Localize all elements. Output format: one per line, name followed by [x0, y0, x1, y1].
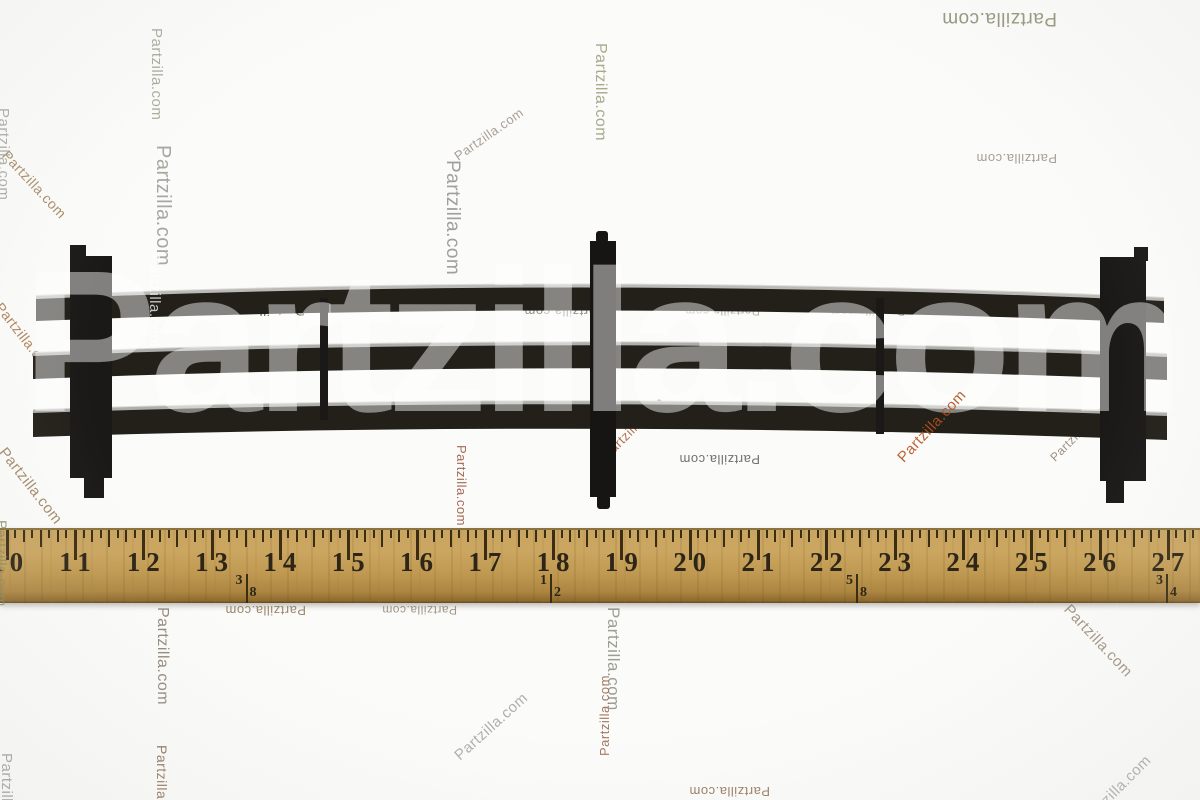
ruler-inch-number: 25 — [1009, 547, 1054, 578]
ruler-tick — [859, 530, 861, 547]
ruler-inch-number: 17 — [462, 547, 507, 578]
ruler-tick — [578, 530, 580, 538]
ruler-tick — [236, 530, 238, 538]
ruler-tick — [1064, 530, 1066, 547]
ruler-tick — [262, 530, 264, 542]
ruler-tick — [842, 530, 844, 542]
ruler-inch-number: 21 — [736, 547, 781, 578]
product-photo: Partzilla.comPartzilla.comPartzilla.comP… — [0, 0, 1200, 800]
ruler-tick — [219, 530, 221, 538]
ruler-tick — [603, 530, 605, 542]
ruler-tick — [928, 530, 930, 547]
ruler-tick — [313, 530, 315, 547]
ruler-tick — [526, 530, 528, 538]
ruler-tick — [364, 530, 366, 542]
ruler-tick — [125, 530, 127, 542]
ruler-tick — [57, 530, 59, 542]
ruler-tick — [851, 530, 853, 538]
ruler-tick — [970, 530, 972, 538]
ruler-tick — [629, 530, 631, 538]
ruler-tick — [672, 530, 674, 542]
ruler-tick — [791, 530, 793, 547]
ruler-tick — [569, 530, 571, 542]
ruler-inch-number: 16 — [394, 547, 439, 578]
ruler-tick — [91, 530, 93, 542]
ruler-tick — [766, 530, 768, 538]
ruler-tick — [245, 530, 247, 547]
ruler-tick — [100, 530, 102, 538]
ruler-tick — [663, 530, 665, 538]
ruler-tick — [287, 530, 289, 538]
ruler-tick — [1116, 530, 1118, 542]
ruler-tick — [1184, 530, 1186, 542]
ruler-inch-number: 13 — [189, 547, 234, 578]
ruler-tick — [740, 530, 742, 542]
ruler-tick — [305, 530, 307, 538]
ruler-tick — [706, 530, 708, 542]
ruler-tick — [424, 530, 426, 538]
ruler-tick — [979, 530, 981, 542]
ruler-tick — [748, 530, 750, 538]
ruler-tick — [253, 530, 255, 538]
ruler-tick — [185, 530, 187, 538]
ruler-inch-number: 12 — [121, 547, 166, 578]
ruler-tick — [83, 530, 85, 538]
ruler-tick — [518, 530, 520, 547]
ruler-tick — [1175, 530, 1177, 538]
ruler-tick — [1107, 530, 1109, 538]
ruler-tick — [919, 530, 921, 538]
ruler-tick — [1047, 530, 1049, 542]
ruler-tick — [373, 530, 375, 538]
ruler-tick — [595, 530, 597, 538]
ruler-inch-number: 19 — [599, 547, 644, 578]
ruler-tick — [885, 530, 887, 538]
ruler-tick — [1056, 530, 1058, 538]
ruler-tick — [1005, 530, 1007, 538]
grille-bracket-right — [1100, 247, 1148, 503]
ruler-tick — [817, 530, 819, 538]
ruler-tick — [31, 530, 33, 538]
ruler-tick — [381, 530, 383, 547]
ruler-tick — [1124, 530, 1126, 538]
ruler-tick — [655, 530, 657, 547]
ruler-tick — [612, 530, 614, 538]
ruler-tick — [1073, 530, 1075, 538]
ruler-tick — [40, 530, 42, 547]
ruler-tick — [467, 530, 469, 542]
ruler-tick — [433, 530, 435, 542]
ruler-tick — [450, 530, 452, 547]
ruler-tick — [902, 530, 904, 538]
ruler-tick — [1013, 530, 1015, 542]
ruler-tick — [194, 530, 196, 542]
ruler-tick — [151, 530, 153, 538]
ruler-tick — [945, 530, 947, 542]
ruler-tick — [356, 530, 358, 538]
ruler-tick — [586, 530, 588, 547]
ruler-tick — [808, 530, 810, 542]
ruler-tick — [646, 530, 648, 538]
ruler-tick — [731, 530, 733, 538]
ruler-tick — [168, 530, 170, 538]
ruler-tick — [458, 530, 460, 538]
ruler-inch-number: 24 — [940, 547, 985, 578]
ruler-tick — [1133, 530, 1135, 547]
grille-part — [0, 0, 1200, 800]
ruler-tick — [322, 530, 324, 538]
ruler-tick — [23, 530, 25, 542]
ruler-tick — [159, 530, 161, 542]
ruler-tick — [1081, 530, 1083, 542]
ruler-tick — [561, 530, 563, 538]
ruler-tick — [270, 530, 272, 538]
ruler-inch-number: 23 — [872, 547, 917, 578]
ruler-tick — [988, 530, 990, 538]
ruler-tick — [911, 530, 913, 542]
ruler-tick — [1022, 530, 1024, 538]
ruler-inch-number: 14 — [257, 547, 302, 578]
yardstick-ruler: 101112131415161718192021222324252627 381… — [0, 528, 1200, 603]
ruler-tick — [680, 530, 682, 538]
ruler-tick — [800, 530, 802, 538]
ruler-tick — [492, 530, 494, 538]
ruler-tick — [330, 530, 332, 542]
ruler-tick — [714, 530, 716, 538]
grille-divider-left — [320, 298, 328, 420]
ruler-tick — [783, 530, 785, 538]
grille-center-support — [590, 231, 616, 509]
ruler-tick — [774, 530, 776, 542]
grille-divider-right — [876, 298, 884, 434]
ruler-tick — [953, 530, 955, 538]
ruler-tick — [1039, 530, 1041, 538]
ruler-tick — [48, 530, 50, 538]
ruler-tick — [544, 530, 546, 538]
ruler-tick — [637, 530, 639, 542]
ruler-tick — [176, 530, 178, 547]
ruler-tick — [390, 530, 392, 538]
ruler-tick — [1192, 530, 1194, 538]
ruler-tick — [296, 530, 298, 542]
ruler-tick — [117, 530, 119, 538]
ruler-inch-number: 11 — [53, 547, 96, 578]
grille-bracket-left — [70, 245, 112, 498]
ruler-inch-number: 10 — [0, 547, 29, 578]
ruler-tick — [1141, 530, 1143, 538]
ruler-tick — [108, 530, 110, 547]
ruler-tick — [877, 530, 879, 542]
ruler-tick — [501, 530, 503, 542]
ruler-tick — [228, 530, 230, 542]
ruler-tick — [509, 530, 511, 538]
ruler-tick — [1150, 530, 1152, 542]
ruler-tick — [65, 530, 67, 538]
ruler-tick — [134, 530, 136, 538]
ruler-tick — [202, 530, 204, 538]
ruler-inch-number: 22 — [804, 547, 849, 578]
ruler-tick — [868, 530, 870, 538]
ruler-tick — [339, 530, 341, 538]
ruler-tick — [834, 530, 836, 538]
ruler-tick — [723, 530, 725, 547]
ruler-inch-number: 18 — [531, 547, 576, 578]
ruler-tick — [14, 530, 16, 538]
ruler-tick — [535, 530, 537, 542]
ruler-tick — [936, 530, 938, 538]
ruler-inch-number: 20 — [667, 547, 712, 578]
ruler-tick — [1090, 530, 1092, 538]
ruler-inch-number: 15 — [326, 547, 371, 578]
ruler-tick — [398, 530, 400, 542]
ruler-tick — [996, 530, 998, 547]
ruler-tick — [1158, 530, 1160, 538]
ruler-tick — [441, 530, 443, 538]
ruler-tick — [407, 530, 409, 538]
ruler-tick — [697, 530, 699, 538]
ruler-tick — [475, 530, 477, 538]
ruler-inch-number: 26 — [1077, 547, 1122, 578]
